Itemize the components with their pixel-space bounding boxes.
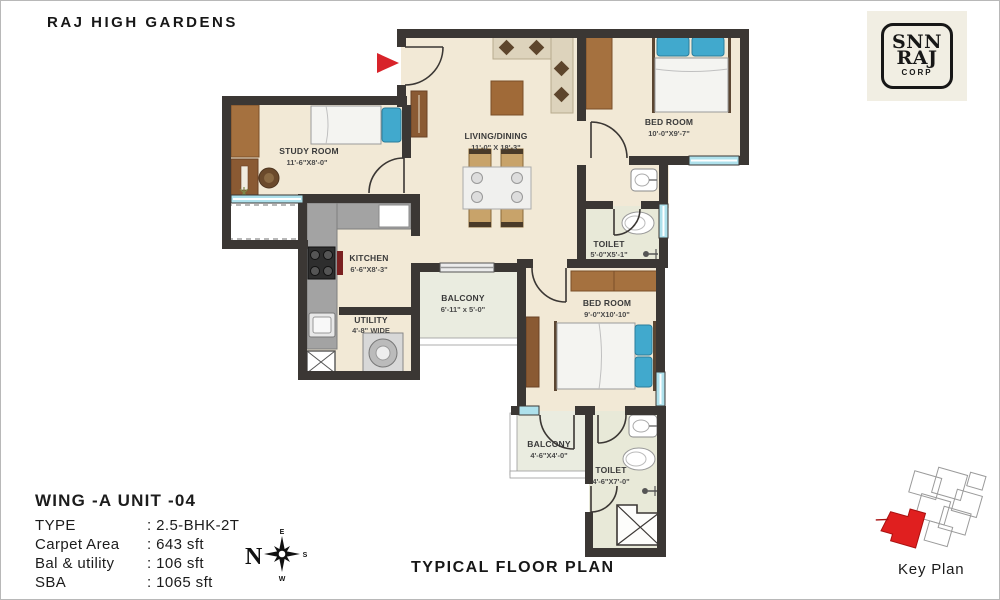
railing [510, 471, 590, 478]
compass-west-label: W [279, 576, 286, 583]
pillow-icon [382, 108, 401, 142]
unit-info-row-balcony: Bal & utility : 106 sft [35, 554, 239, 573]
unit-info-row-sba: SBA : 1065 sft [35, 573, 239, 592]
balcony1-floor [416, 267, 519, 341]
open-ledge [227, 205, 303, 239]
utility-dims: 4'-8" WIDE [352, 326, 390, 335]
wardrobe-icon [586, 37, 612, 109]
balcony1-dims: 6'-11" x 5'-0" [441, 305, 486, 314]
double-bed-icon [557, 323, 635, 389]
bedroom2-dims: 9'-0"X10'-10" [584, 310, 630, 319]
kitchen-label: KITCHEN [349, 253, 388, 263]
unit-info-label: SBA [35, 573, 147, 592]
shaft-x-icon [307, 351, 335, 373]
unit-info-row-type: TYPE : 2.5-BHK-2T [35, 516, 239, 535]
stove-knobs [337, 251, 343, 275]
plan-type-title: TYPICAL FLOOR PLAN [411, 559, 615, 577]
plate [512, 192, 523, 203]
railing [414, 338, 518, 345]
kitchen-dims: 6'-6"X8'-3" [350, 265, 388, 274]
washing-machine-icon [363, 333, 403, 373]
toilet1-dims: 5'-0"X5'-1" [590, 250, 628, 259]
living-dining-dims: 11'-0" X 18'-3" [471, 143, 521, 152]
key-plan-label: Key Plan [898, 561, 964, 578]
single-bed-icon [311, 106, 381, 144]
compass-east-label: E [280, 529, 285, 536]
unit-info-label: TYPE [35, 516, 147, 535]
plate [472, 192, 483, 203]
unit-info-value: : 643 sft [147, 535, 204, 554]
plate [512, 173, 523, 184]
balcony2-dims: 4'-6"X4'-0" [530, 451, 568, 460]
unit-info-heading: WING -A UNIT -04 [35, 491, 239, 511]
dining-table [463, 167, 531, 209]
balcony2-label: BALCONY [527, 439, 571, 449]
burner [311, 267, 320, 276]
chair-back [469, 222, 491, 227]
living-dining-label: LIVING/DINING [464, 131, 527, 141]
key-plan-block [938, 506, 971, 535]
unit-info-value: : 2.5-BHK-2T [147, 516, 239, 535]
unit-info: WING -A UNIT -04 TYPE : 2.5-BHK-2T Carpe… [35, 491, 239, 592]
dresser-icon [526, 317, 539, 387]
unit-info-value: : 1065 sft [147, 573, 213, 592]
study-room-label: STUDY ROOM [279, 146, 338, 156]
utility-label: UTILITY [354, 315, 388, 325]
compass-north-label: N [245, 544, 263, 570]
wc-icon [622, 212, 654, 234]
floor-plan-page: RAJ HIGH GARDENS SNN RAJ CORP [0, 0, 1000, 600]
study-room-dims: 11'-6"X8'-0" [286, 158, 328, 167]
pillow-icon [635, 357, 652, 387]
key-plan-block [967, 472, 986, 490]
unit-info-row-carpet: Carpet Area : 643 sft [35, 535, 239, 554]
window [519, 406, 539, 415]
railing [510, 413, 517, 475]
wc-icon [623, 448, 655, 470]
burner [324, 267, 333, 276]
desk-chair-seat [264, 173, 274, 183]
fridge-icon [379, 205, 409, 227]
pillow-icon [692, 37, 724, 56]
unit-info-label: Bal & utility [35, 554, 147, 573]
key-plan-block [951, 489, 982, 517]
burner [311, 251, 320, 260]
toilet2-dims: 4'-6"X7'-0" [592, 477, 630, 486]
burner [324, 251, 333, 260]
pillow-icon [635, 325, 652, 355]
compass-hub [278, 550, 286, 558]
bedroom1-label: BED ROOM [645, 117, 693, 127]
coffee-table-icon [491, 81, 523, 115]
unit-info-label: Carpet Area [35, 535, 147, 554]
double-bed-icon [655, 58, 728, 112]
bedroom2-label: BED ROOM [583, 298, 631, 308]
compass-south-label: S [303, 552, 308, 559]
toilet2-label: TOILET [595, 465, 627, 475]
key-plan-map [871, 451, 988, 562]
key-plan-highlighted-unit [879, 503, 925, 548]
toilet1-label: TOILET [593, 239, 625, 249]
compass-icon: N E S W [245, 529, 308, 583]
entrance-arrow-icon [377, 53, 399, 73]
sink-basin [313, 317, 331, 333]
balcony1-label: BALCONY [441, 293, 485, 303]
wardrobe-icon [231, 105, 259, 157]
pillow-icon [657, 37, 689, 56]
desk-paper [241, 166, 248, 190]
plate [472, 173, 483, 184]
bedroom1-furniture [586, 35, 731, 113]
bedroom1-dims: 10'-0"X9'-7" [648, 129, 690, 138]
unit-info-value: : 106 sft [147, 554, 204, 573]
chair-back [501, 222, 523, 227]
